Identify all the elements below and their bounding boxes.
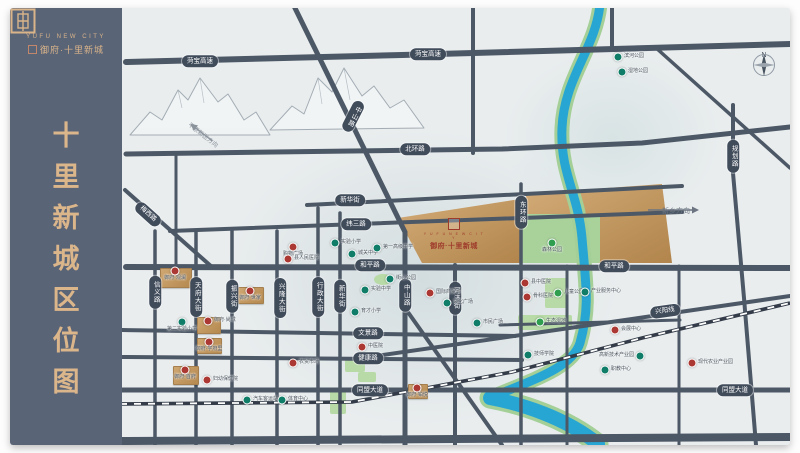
project-logo: Y U F U N E W C I T Y 御府·十里新城 bbox=[422, 218, 486, 251]
poi-label: 会展中心 bbox=[621, 327, 641, 333]
brand-logo-en: YUFU NEW CITY bbox=[10, 34, 122, 40]
poi-label: 街心公园 bbox=[396, 276, 416, 282]
brand-logo-cn-text: 御府·十里新城 bbox=[40, 43, 104, 56]
project-brand-en: Y U F U N E W C I T Y bbox=[422, 232, 486, 240]
poi-marker bbox=[611, 326, 620, 335]
road-label: 新华街 bbox=[334, 280, 346, 313]
brand-seal-icon bbox=[28, 45, 37, 54]
poi-label: 农贸市场 bbox=[299, 360, 319, 366]
poi-marker bbox=[203, 376, 212, 385]
poi-label: 体育中心 bbox=[288, 397, 308, 403]
sidebar: YUFU NEW CITY 御府·十里新城 十里新城区位图 bbox=[10, 8, 122, 445]
road-label: 东环路 bbox=[515, 196, 527, 229]
poi-marker bbox=[386, 275, 395, 284]
poster-title-char: 城 bbox=[10, 239, 122, 280]
poi-marker bbox=[284, 255, 293, 264]
poster-title-char: 位 bbox=[10, 321, 122, 362]
brand-logo-icon bbox=[10, 8, 36, 34]
poi-label: 湿地公园 bbox=[628, 69, 648, 75]
poi-label: 高新技术产业园 bbox=[599, 353, 634, 359]
poi-label: 文化广场 bbox=[453, 300, 473, 306]
road-label: 北环路 bbox=[400, 143, 430, 155]
poi-marker bbox=[636, 352, 645, 361]
poi-label: 汽车客运站 bbox=[253, 397, 278, 403]
poi-marker bbox=[358, 343, 367, 352]
road-label: 天府大街 bbox=[190, 277, 202, 317]
brand-logo-cn: 御府·十里新城 bbox=[10, 43, 122, 56]
poi-marker bbox=[361, 286, 370, 295]
poi-marker bbox=[426, 289, 435, 298]
road-label: 和平路 bbox=[355, 259, 385, 271]
arrow-right-icon bbox=[646, 206, 700, 214]
road-label: 信义路 bbox=[149, 276, 161, 309]
poi-marker bbox=[204, 317, 213, 326]
poi-label: 生态湿地 bbox=[546, 319, 566, 325]
poi-label: 职教中心 bbox=[611, 367, 631, 373]
poi-label: 第一高级中学 bbox=[383, 245, 413, 251]
poi-label: 御府·学府里 bbox=[196, 347, 223, 353]
map-canvas: Y U F U N E W C I T Y 御府·十里新城 新乡方向 平原新区方… bbox=[122, 8, 790, 445]
poster-title-char: 区 bbox=[10, 280, 122, 321]
poi-marker bbox=[289, 359, 298, 368]
project-name: 御府·十里新城 bbox=[422, 241, 486, 251]
poi-label: 现代农业产业园 bbox=[698, 360, 733, 366]
poi-label: 育才小学 bbox=[361, 309, 381, 315]
road-label: 新华街 bbox=[335, 194, 365, 206]
poi-label: 县人民医院 bbox=[294, 256, 319, 262]
compass: N bbox=[750, 52, 778, 59]
poi-label: 骨科医院 bbox=[533, 294, 553, 300]
location-map-poster: { "sidebar": { "logo_en": "YUFU NEW CITY… bbox=[0, 0, 800, 453]
poi-marker bbox=[614, 53, 623, 62]
road-label: 文景路 bbox=[353, 327, 383, 339]
poi-marker bbox=[443, 299, 452, 308]
direction-arrow-xinxiang: 新乡方向 bbox=[646, 206, 706, 216]
poi-label: 御府·铂悦 bbox=[406, 393, 428, 399]
poi-marker bbox=[601, 366, 610, 375]
poi-label: 妇幼保健院 bbox=[213, 377, 238, 383]
poster-title-char: 十 bbox=[10, 116, 122, 157]
poi-marker bbox=[373, 244, 382, 253]
poi-marker bbox=[278, 396, 287, 405]
road-label: 同盟大道 bbox=[352, 384, 388, 396]
road-label: 规划路 bbox=[727, 140, 739, 173]
poi-label: 市民广场 bbox=[483, 320, 503, 326]
poi-label: 技师学院 bbox=[534, 352, 554, 358]
compass-icon bbox=[750, 52, 778, 78]
road-label: 健康路 bbox=[353, 352, 383, 364]
poi-marker bbox=[618, 68, 627, 77]
poi-label: 县中医院 bbox=[531, 280, 551, 286]
poi-marker bbox=[521, 279, 530, 288]
road-label: 兴隆大街 bbox=[274, 278, 286, 318]
road-label: 振兴街 bbox=[226, 280, 238, 313]
poi-label: 国际商贸城 bbox=[436, 290, 461, 296]
poi-label: 御府·首府 bbox=[174, 375, 196, 381]
poi-label: 森林公园 bbox=[542, 248, 562, 254]
poi-marker bbox=[351, 308, 360, 317]
road-label: 和平路 bbox=[599, 260, 629, 272]
poi-marker bbox=[581, 288, 590, 297]
poi-marker bbox=[536, 318, 545, 327]
project-logo-icon bbox=[448, 218, 460, 230]
road-label: 菏宝高速 bbox=[410, 48, 446, 60]
poi-label: 御府·世家 bbox=[239, 296, 261, 302]
poi-marker bbox=[331, 239, 340, 248]
poi-marker bbox=[524, 351, 533, 360]
road-label: 行政大街 bbox=[312, 277, 324, 317]
poi-label: 实验中学 bbox=[371, 287, 391, 293]
poster-title-vertical: 十里新城区位图 bbox=[10, 116, 122, 403]
poi-label: 滨河公园 bbox=[624, 54, 644, 60]
road-label: 河济街 bbox=[449, 282, 461, 315]
poi-marker bbox=[473, 319, 482, 328]
poi-marker bbox=[554, 289, 563, 298]
poster-title-char: 里 bbox=[10, 157, 122, 198]
poi-label: 产业服务中心 bbox=[591, 289, 621, 295]
poi-label: 中医院 bbox=[368, 344, 383, 350]
road-label: 中山路 bbox=[399, 279, 411, 312]
poster-title-char: 新 bbox=[10, 198, 122, 239]
poi-label: 御府·观澜 bbox=[164, 276, 186, 282]
road-label: 同盟大道 bbox=[717, 384, 753, 396]
poi-marker bbox=[523, 293, 532, 302]
map-card: YUFU NEW CITY 御府·十里新城 十里新城区位图 bbox=[10, 8, 790, 445]
poi-marker bbox=[688, 359, 697, 368]
brand-logo: YUFU NEW CITY 御府·十里新城 bbox=[10, 34, 122, 56]
road-label: 纬三路 bbox=[341, 218, 371, 230]
poi-label: 御府·尚城 bbox=[214, 318, 236, 324]
poi-marker bbox=[348, 250, 357, 259]
road-label: 菏宝高速 bbox=[182, 55, 218, 67]
poster-title-char: 图 bbox=[10, 362, 122, 403]
poi-label: 实验小学 bbox=[341, 240, 361, 246]
poi-marker bbox=[243, 396, 252, 405]
poi-label: 第二实验小学 bbox=[167, 327, 197, 333]
